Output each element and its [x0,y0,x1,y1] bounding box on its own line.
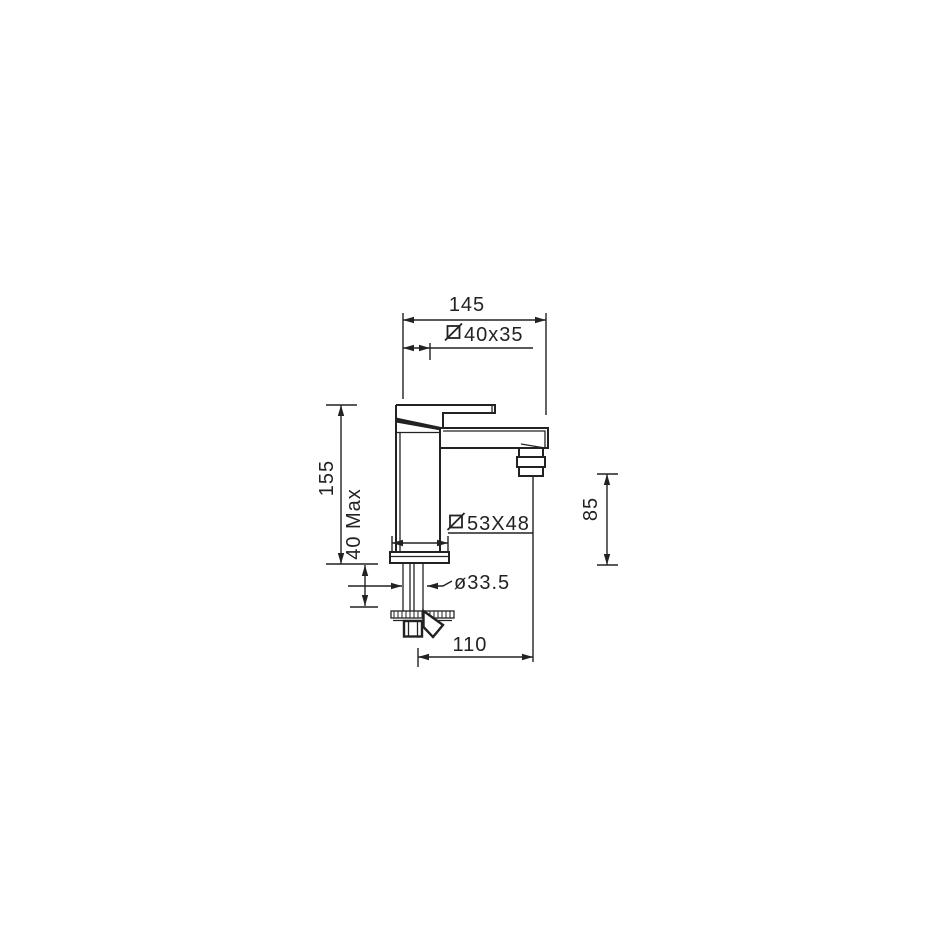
arrowhead [362,595,368,606]
aerator-step-3 [519,467,543,476]
faucet-dimension-drawing: 145 40x35 155 40 Max 85 53X48 ø33.5 110 [0,0,950,950]
arrowhead [535,317,546,323]
technical-drawing-canvas: 145 40x35 155 40 Max 85 53X48 ø33.5 110 [0,0,950,950]
dim-label-85: 85 [580,497,602,521]
square-section-symbol [448,513,465,530]
arrowhead [522,654,533,660]
arrowhead [427,583,438,589]
arrowhead [403,317,414,323]
base-flange [390,552,449,563]
dimension-lines [326,313,618,667]
dim-label-145: 145 [449,294,485,316]
supply-pipe-angled [424,611,444,637]
nut-hatching [394,611,450,618]
arrowhead [419,345,430,351]
bottom-connector [404,621,422,637]
dim-label-110: 110 [453,634,488,656]
arrowhead [604,474,610,485]
arrowhead [403,345,414,351]
dim-label-53x48: 53X48 [467,513,530,535]
arrowhead [362,565,368,576]
arrowhead [437,540,448,546]
aerator-step-1 [519,448,543,457]
dim-label-40max: 40 Max [343,488,365,560]
arrowhead [418,654,429,660]
dim-label-155: 155 [316,460,338,496]
square-section-symbol [445,324,462,341]
dim-label-40x35: 40x35 [464,324,524,346]
aerator-step-2 [517,457,545,467]
handle-wedge [396,418,441,431]
arrowhead [391,583,402,589]
dim-label-335: ø33.5 [454,572,510,594]
arrowhead [604,554,610,565]
arrowhead [338,405,344,416]
arrowhead [392,540,403,546]
